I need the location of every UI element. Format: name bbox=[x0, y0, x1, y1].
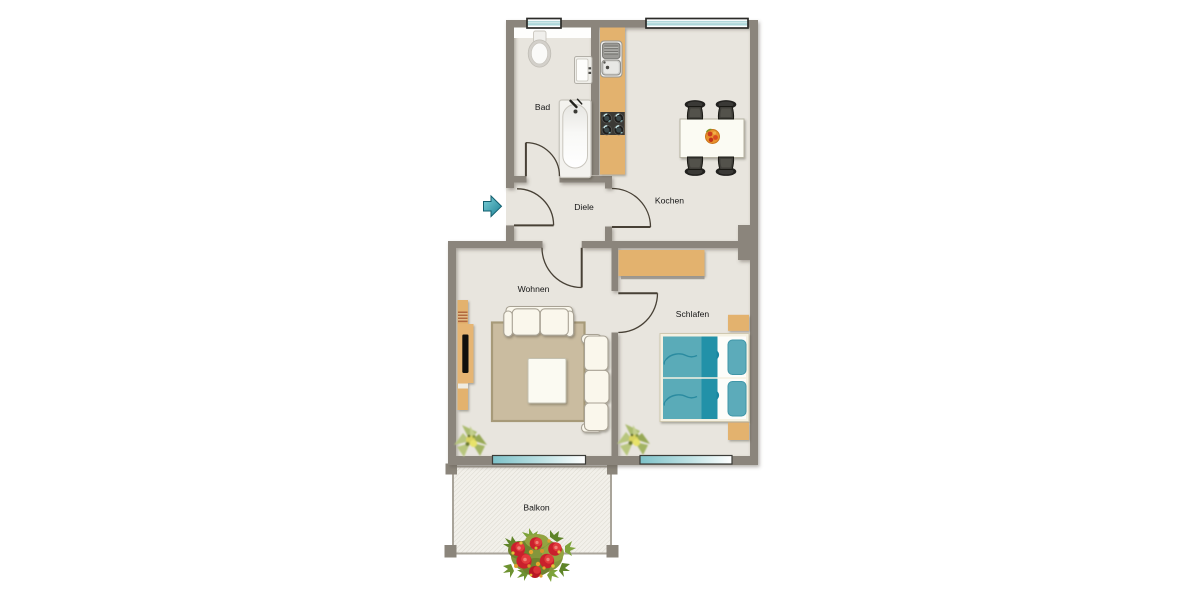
svg-text:Kochen: Kochen bbox=[655, 196, 684, 206]
svg-text:Balkon: Balkon bbox=[523, 503, 549, 513]
svg-text:Schlafen: Schlafen bbox=[676, 309, 710, 319]
svg-text:Diele: Diele bbox=[574, 202, 594, 212]
svg-text:Wohnen: Wohnen bbox=[518, 284, 550, 294]
svg-text:Bad: Bad bbox=[535, 102, 551, 112]
